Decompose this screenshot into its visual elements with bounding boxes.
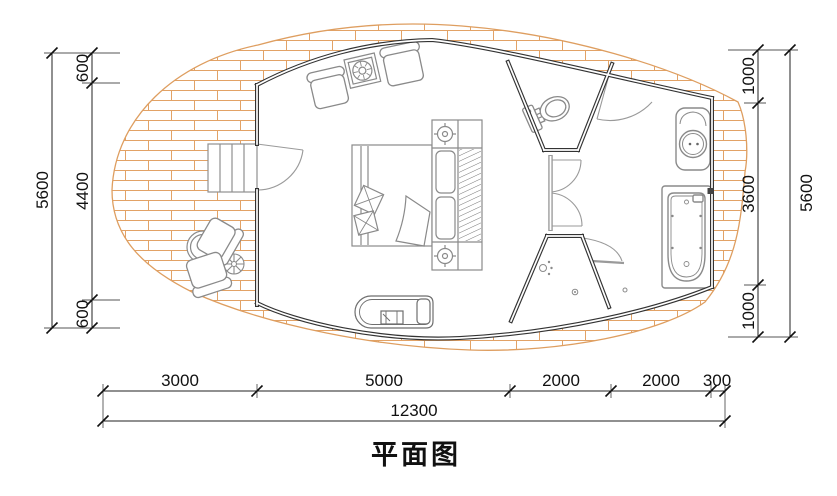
dim-left-seg: 600: [73, 300, 92, 328]
dimension-bottom: 3000 5000 2000 2000 300 12300: [98, 371, 732, 428]
dimension-left: 5600 600 4400 600: [33, 48, 120, 334]
dim-left-seg: 600: [73, 54, 92, 82]
dim-bottom-seg: 300: [703, 371, 731, 390]
dim-right-seg: 1000: [739, 57, 758, 95]
pillow: [436, 151, 455, 193]
bench-pillow: [417, 299, 430, 324]
stairs: [208, 144, 257, 192]
dim-right-seg: 1000: [739, 292, 758, 330]
wall-connector: [708, 188, 714, 194]
dim-left-seg: 4400: [73, 172, 92, 210]
cushion: [354, 211, 378, 235]
side-table: [344, 53, 381, 88]
dim-right-seg: 3600: [739, 175, 758, 213]
dim-bottom-seg: 3000: [161, 371, 199, 390]
dimension-right: 1000 3600 1000 5600: [728, 45, 816, 343]
dim-left-total: 5600: [33, 171, 52, 209]
pillow: [436, 197, 455, 239]
bathtub: [662, 186, 711, 288]
dim-bottom-seg: 5000: [365, 371, 403, 390]
floor-plan-canvas: 5600 600 4400 600 1000 3600 1000 5600: [0, 0, 837, 496]
floor-plan-page: 5600 600 4400 600 1000 3600 1000 5600: [0, 0, 837, 496]
dim-bottom-total: 12300: [390, 401, 437, 420]
drawing-title: 平面图: [371, 440, 461, 470]
dim-right-total: 5600: [797, 174, 816, 212]
dim-bottom-seg: 2000: [542, 371, 580, 390]
headboard-hatch: [459, 149, 481, 241]
dim-bottom-seg: 2000: [642, 371, 680, 390]
washbasin: [676, 108, 710, 170]
bench: [355, 296, 433, 328]
tub-faucet: [693, 195, 703, 202]
